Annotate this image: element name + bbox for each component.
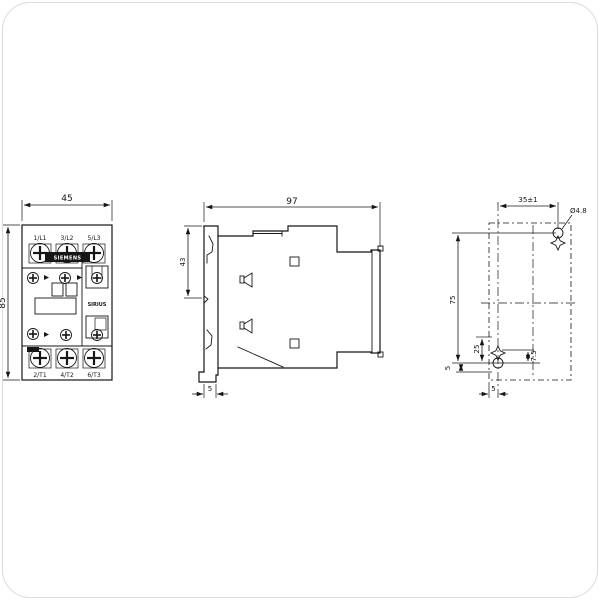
- edge-dim-5-bottom: 5: [479, 382, 508, 398]
- aux-screw-row-top: [28, 273, 103, 284]
- front-window: [52, 283, 63, 296]
- hole-spacing-h-label: 35±1: [518, 196, 537, 204]
- side-view: 97 43 5: [179, 197, 383, 398]
- screw-terminal-icon: [29, 349, 105, 369]
- drawing-canvas: 45 85 1/L1 3/L2 5/L3: [0, 0, 600, 600]
- brand-label-bar: SIEMENS: [45, 252, 90, 262]
- terminal-label-3L2: 3/L2: [61, 235, 74, 242]
- terminal-label-6T3: 6/T3: [87, 372, 101, 379]
- front-view: 45 85 1/L1 3/L2 5/L3: [0, 194, 112, 380]
- hole-spacing-h-dimension: 35±1: [500, 196, 558, 229]
- terminal-label-1L1: 1/L1: [34, 235, 47, 242]
- detail-dim-7-5-label: 7.5: [530, 350, 538, 361]
- side-rail-label: 43: [179, 258, 187, 267]
- din-clip-top: [207, 236, 213, 263]
- series-label: SIRIUS: [88, 302, 107, 308]
- terminal-label-5L3: 5/L3: [88, 235, 101, 242]
- side-depth-dimension: 97: [204, 197, 380, 247]
- marker-arrow-icon: [44, 275, 49, 280]
- side-profile-outline: [199, 226, 383, 382]
- hole-spacing-v-label: 75: [449, 296, 457, 305]
- front-width-label: 45: [61, 194, 72, 204]
- terminal-label-4T2: 4/T2: [60, 372, 74, 379]
- side-foot-dimension: 5: [192, 384, 228, 398]
- hole-diameter-label: Ø4.8: [570, 207, 587, 215]
- hole-spacing-v-dimension: 75: [449, 233, 556, 363]
- dimension-drawing-page: 45 85 1/L1 3/L2 5/L3: [0, 0, 600, 600]
- side-foot-label: 5: [208, 385, 212, 393]
- side-depth-label: 97: [286, 197, 297, 207]
- front-width-dimension: 45: [22, 194, 112, 221]
- brand-label: SIEMENS: [54, 256, 82, 262]
- marker-arrow-icon: [44, 332, 49, 337]
- terminal-funnel-icon: [240, 273, 252, 333]
- din-clip-bottom: [206, 330, 212, 349]
- edge-dim-5-bottom-label: 5: [491, 385, 495, 393]
- drilling-plan: 35±1 Ø4.8 75: [444, 196, 587, 398]
- front-height-dimension: 85: [0, 225, 20, 380]
- detail-dim-7-5: 7.5: [502, 350, 538, 362]
- detail-dim-25-label: 25: [473, 345, 481, 354]
- terminal-label-2T1: 2/T1: [33, 372, 47, 379]
- detail-dim-5-left: 5: [444, 365, 492, 373]
- side-rail-dimension: 43: [179, 226, 202, 298]
- front-height-label: 85: [0, 297, 8, 308]
- front-window: [66, 283, 77, 296]
- marker-arrow-icon: [77, 275, 82, 280]
- hole-diameter-callout: Ø4.8: [562, 207, 587, 229]
- detail-dim-5-left-label: 5: [444, 366, 452, 370]
- front-label-window: [35, 298, 76, 314]
- mounting-hole-icon: [551, 228, 565, 250]
